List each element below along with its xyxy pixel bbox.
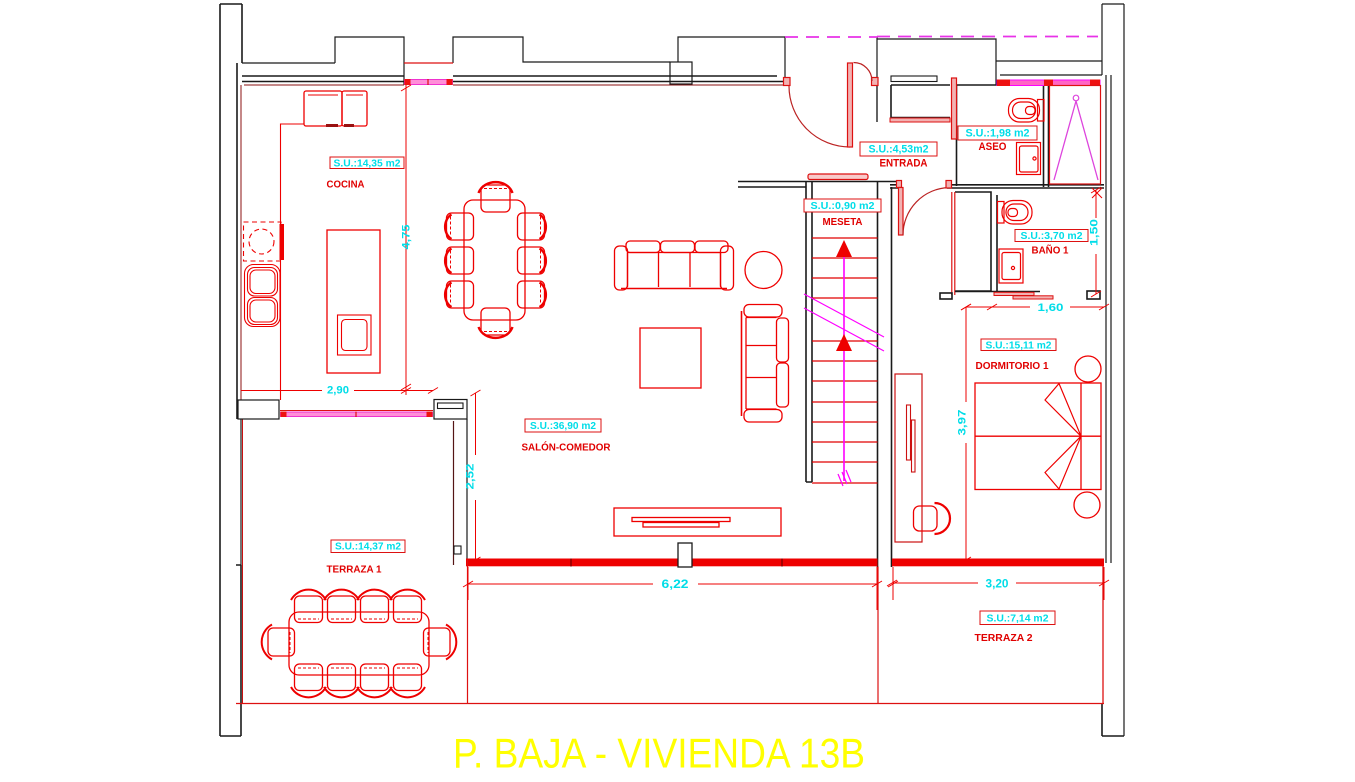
svg-text:S.U.:4,53m2: S.U.:4,53m2 — [869, 144, 929, 156]
svg-text:1,60: 1,60 — [1038, 302, 1064, 314]
svg-text:1,50: 1,50 — [1089, 219, 1101, 246]
svg-text:S.U.:1,98 m2: S.U.:1,98 m2 — [966, 128, 1030, 140]
svg-text:COCINA: COCINA — [327, 180, 365, 191]
svg-text:S.U.:14,37 m2: S.U.:14,37 m2 — [335, 542, 401, 553]
svg-text:ENTRADA: ENTRADA — [880, 158, 928, 170]
svg-text:TERRAZA 1: TERRAZA 1 — [327, 564, 382, 576]
svg-text:3,20: 3,20 — [986, 579, 1009, 591]
svg-text:SALÓN-COMEDOR: SALÓN-COMEDOR — [522, 441, 611, 454]
svg-text:S.U.:36,90 m2: S.U.:36,90 m2 — [530, 421, 596, 432]
svg-text:6,22: 6,22 — [662, 579, 689, 591]
svg-text:3,97: 3,97 — [957, 410, 969, 436]
svg-text:DORMITORIO 1: DORMITORIO 1 — [976, 360, 1049, 372]
svg-text:TERRAZA 2: TERRAZA 2 — [975, 632, 1033, 644]
svg-text:S.U.:14,35 m2: S.U.:14,35 m2 — [334, 159, 401, 170]
svg-text:P. BAJA - VIVIENDA 13B: P. BAJA - VIVIENDA 13B — [453, 730, 865, 777]
svg-text:MESETA: MESETA — [823, 216, 863, 228]
svg-text:S.U.:15,11 m2: S.U.:15,11 m2 — [986, 341, 1052, 352]
svg-text:4,75: 4,75 — [401, 225, 413, 250]
svg-text:S.U.:0,90 m2: S.U.:0,90 m2 — [811, 200, 875, 212]
svg-text:ASEO: ASEO — [979, 141, 1007, 153]
svg-text:2,52: 2,52 — [465, 464, 477, 490]
svg-text:S.U.:3,70 m2: S.U.:3,70 m2 — [1021, 231, 1083, 242]
svg-text:BAÑO 1: BAÑO 1 — [1032, 244, 1069, 257]
svg-text:S.U.:7,14 m2: S.U.:7,14 m2 — [987, 613, 1049, 625]
svg-text:2,90: 2,90 — [327, 385, 349, 397]
